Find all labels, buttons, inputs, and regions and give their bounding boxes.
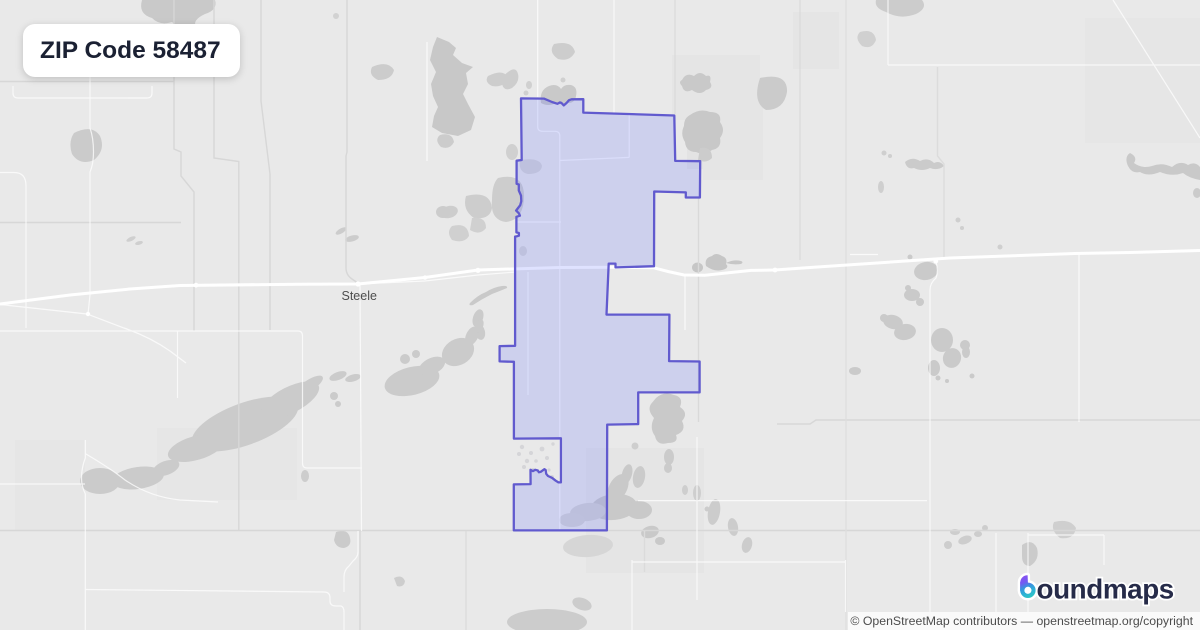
svg-text:Steele: Steele (342, 289, 377, 303)
svg-text:oundmaps: oundmaps (1037, 574, 1174, 605)
